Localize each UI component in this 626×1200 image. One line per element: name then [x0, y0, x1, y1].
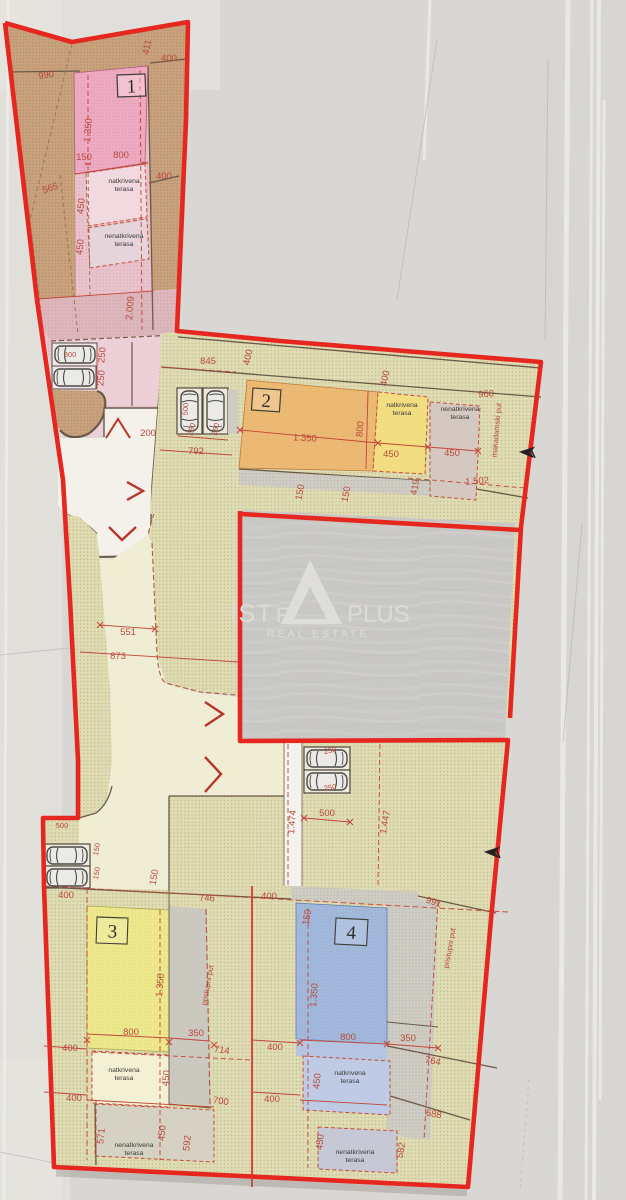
svg-text:PLUS: PLUS: [347, 601, 410, 628]
svg-text:450: 450: [444, 448, 460, 459]
svg-text:terasa: terasa: [115, 186, 134, 193]
svg-text:200: 200: [140, 428, 156, 439]
svg-text:700: 700: [212, 1095, 229, 1108]
svg-text:1.350: 1.350: [308, 983, 321, 1008]
svg-text:natkrivena: natkrivena: [386, 402, 418, 409]
svg-text:250: 250: [323, 782, 337, 793]
svg-text:250: 250: [96, 347, 108, 364]
svg-text:REAL ESTATE: REAL ESTATE: [267, 628, 369, 640]
svg-text:terasa: terasa: [393, 410, 412, 417]
svg-text:terasa: terasa: [346, 1157, 365, 1164]
svg-text:natkrivena: natkrivena: [334, 1070, 366, 1077]
svg-text:2.009: 2.009: [124, 296, 137, 321]
svg-text:nenatkrivena: nenatkrivena: [336, 1149, 375, 1156]
svg-text:845: 845: [200, 356, 216, 367]
svg-text:551: 551: [120, 627, 136, 638]
svg-text:450: 450: [383, 449, 399, 460]
svg-text:500: 500: [56, 821, 69, 830]
svg-text:792: 792: [188, 446, 204, 457]
svg-text:1.502: 1.502: [465, 475, 489, 488]
svg-text:592: 592: [181, 1135, 193, 1152]
svg-text:400: 400: [161, 53, 177, 64]
svg-text:400: 400: [58, 890, 74, 901]
svg-text:800: 800: [340, 1032, 356, 1043]
svg-text:4: 4: [346, 923, 357, 944]
svg-text:2: 2: [261, 391, 272, 413]
svg-text:400: 400: [66, 1093, 82, 1104]
svg-text:350: 350: [400, 1033, 416, 1044]
svg-text:873: 873: [110, 651, 126, 662]
svg-text:450: 450: [311, 1073, 323, 1090]
svg-text:400: 400: [261, 891, 277, 902]
svg-text:terasa: terasa: [125, 1150, 144, 1157]
svg-text:800: 800: [123, 1027, 139, 1038]
svg-text:400: 400: [62, 1043, 78, 1054]
svg-text:450: 450: [160, 1070, 172, 1087]
svg-text:400: 400: [264, 1094, 280, 1105]
svg-text:nenatkrivena: nenatkrivena: [105, 233, 144, 240]
svg-text:1: 1: [126, 76, 136, 97]
svg-text:1.350: 1.350: [154, 973, 167, 998]
svg-text:3: 3: [107, 921, 117, 942]
svg-text:250: 250: [95, 370, 107, 387]
svg-text:450: 450: [156, 1125, 168, 1142]
svg-text:nenatkrivena: nenatkrivena: [441, 406, 480, 413]
svg-text:400: 400: [156, 171, 172, 182]
svg-text:571: 571: [95, 1128, 107, 1145]
svg-text:natkrivena: natkrivena: [108, 178, 140, 185]
svg-text:IST: IST: [230, 600, 273, 628]
svg-text:960: 960: [478, 388, 495, 400]
svg-text:714: 714: [213, 1044, 230, 1057]
svg-text:terasa: terasa: [115, 241, 134, 248]
svg-text:450: 450: [74, 239, 86, 256]
svg-text:1.474: 1.474: [286, 810, 299, 835]
svg-text:terasa: terasa: [451, 414, 470, 421]
svg-text:natkrivena: natkrivena: [108, 1067, 140, 1074]
svg-text:250: 250: [323, 745, 337, 756]
svg-text:800: 800: [113, 150, 129, 161]
svg-text:150: 150: [76, 152, 92, 163]
svg-text:400: 400: [267, 1042, 283, 1053]
svg-text:1.350: 1.350: [293, 432, 317, 444]
svg-text:R: R: [276, 604, 291, 627]
svg-text:500: 500: [180, 402, 190, 415]
svg-text:1.350: 1.350: [82, 118, 95, 143]
svg-text:800: 800: [64, 350, 77, 359]
svg-text:terasa: terasa: [115, 1075, 134, 1082]
svg-text:746: 746: [199, 893, 215, 905]
svg-text:500: 500: [319, 808, 335, 819]
svg-text:450: 450: [75, 198, 87, 215]
svg-text:terasa: terasa: [341, 1078, 360, 1085]
svg-text:450: 450: [314, 1134, 326, 1151]
svg-text:350: 350: [188, 1028, 204, 1039]
svg-text:nenatkrivena: nenatkrivena: [115, 1142, 154, 1149]
svg-text:800: 800: [354, 421, 366, 438]
